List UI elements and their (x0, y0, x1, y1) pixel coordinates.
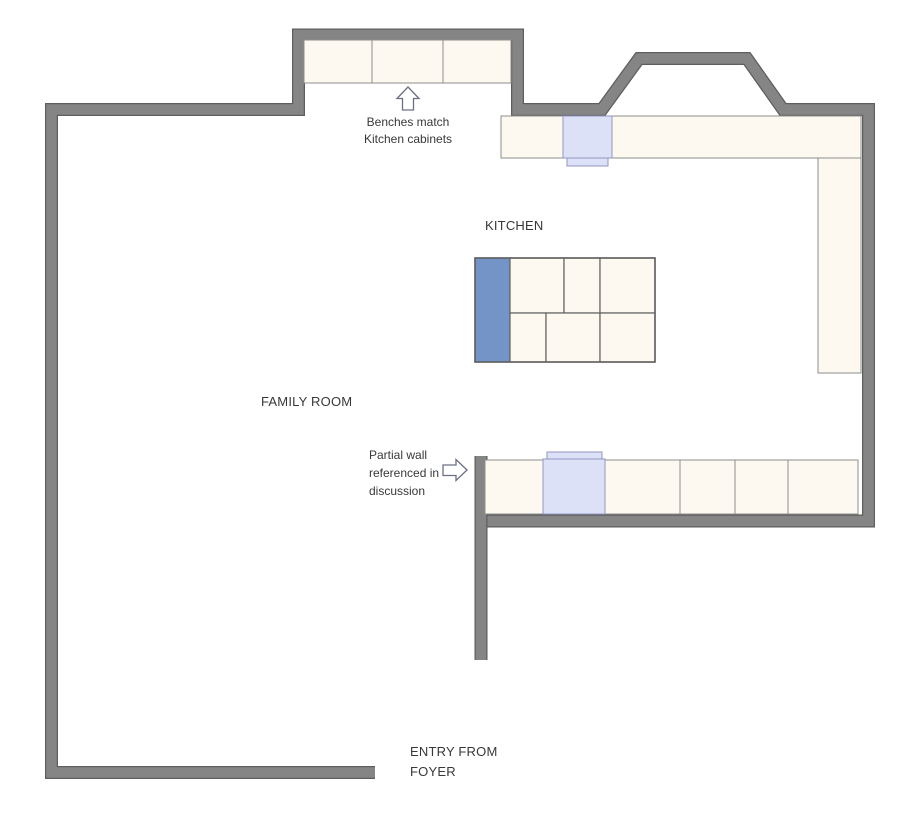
island-cabinet (546, 313, 600, 362)
kitchen-island (475, 258, 655, 362)
bench-run (304, 40, 511, 83)
benches-annotation-line2: Kitchen cabinets (346, 131, 470, 148)
entry-label-line2: FOYER (410, 762, 497, 782)
partial-wall-annotation-line3: discussion (369, 482, 439, 500)
counter-bottom-run (485, 452, 858, 514)
benches-annotation: Benches match Kitchen cabinets (346, 114, 470, 148)
sink-appliance (563, 116, 612, 158)
sink-appliance-tab (567, 158, 608, 166)
entry-from-foyer-label: ENTRY FROM FOYER (410, 742, 497, 782)
island-cabinet (600, 313, 655, 362)
family-room-label: FAMILY ROOM (261, 394, 352, 409)
island-cabinet (600, 258, 655, 313)
counter-right-run (818, 158, 861, 373)
island-cabinet (510, 313, 546, 362)
bench-seat (304, 40, 372, 83)
entry-label-line1: ENTRY FROM (410, 742, 497, 762)
island-cabinet (564, 258, 600, 313)
counter-cell (605, 460, 680, 514)
bench-seat (443, 40, 511, 83)
island-accent-panel (475, 258, 510, 362)
partial-wall-annotation-line2: referenced in (369, 464, 439, 482)
counter-cell (485, 460, 543, 514)
island-cabinet (510, 258, 564, 313)
bench-seat (372, 40, 443, 83)
up-arrow-icon (397, 87, 419, 110)
right-arrow-icon (443, 460, 467, 481)
counter-top-run (501, 116, 861, 166)
counter-cell (788, 460, 858, 514)
kitchen-room-label: KITCHEN (485, 218, 543, 233)
partial-wall-annotation: Partial wall referenced in discussion (369, 446, 439, 500)
partial-wall-annotation-line1: Partial wall (369, 446, 439, 464)
counter-cell (680, 460, 735, 514)
benches-annotation-line1: Benches match (346, 114, 470, 131)
range-appliance (543, 459, 605, 514)
counter-cell (501, 116, 563, 158)
floor-plan: KITCHEN FAMILY ROOM ENTRY FROM FOYER Ben… (0, 0, 900, 823)
counter-cell (735, 460, 788, 514)
